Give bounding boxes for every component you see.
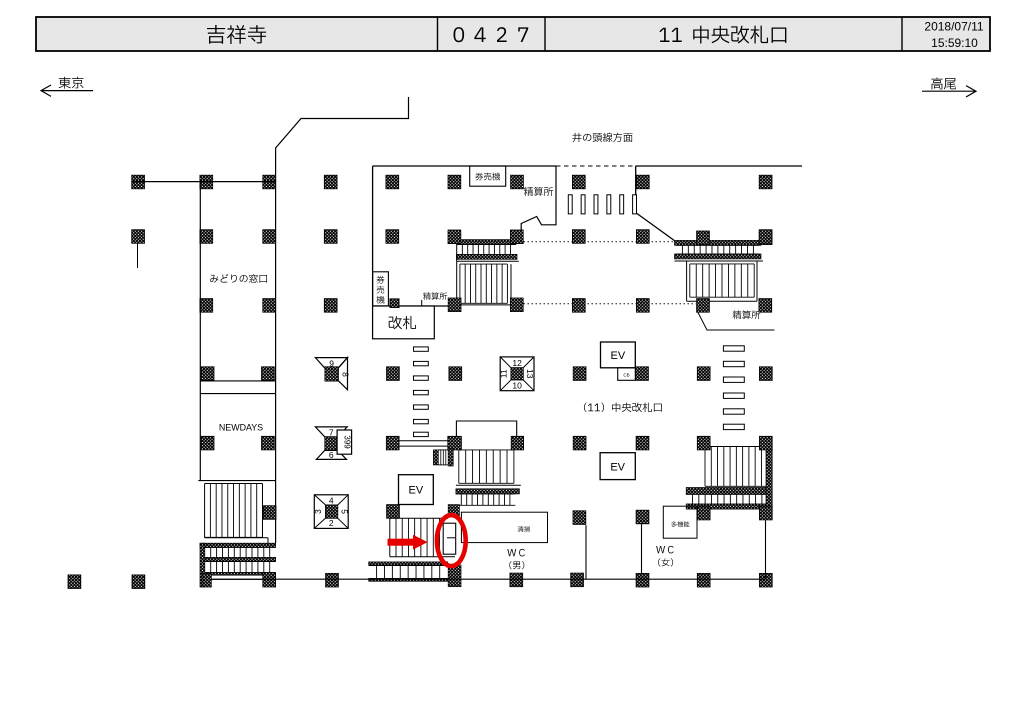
svg-text:EV: EV [409, 485, 424, 497]
svg-text:10: 10 [512, 381, 522, 391]
svg-text:11: 11 [499, 369, 509, 378]
svg-text:399: 399 [343, 435, 352, 449]
svg-text:CB: CB [623, 372, 629, 377]
svg-text:12: 12 [512, 358, 522, 368]
svg-text:5: 5 [340, 509, 350, 514]
svg-text:2018/07/11: 2018/07/11 [924, 20, 983, 34]
svg-text:6: 6 [329, 450, 334, 460]
svg-text:8: 8 [341, 372, 351, 377]
svg-text:EV: EV [611, 350, 626, 362]
svg-text:13: 13 [525, 369, 535, 379]
svg-text:4: 4 [329, 495, 334, 505]
svg-text:2: 2 [329, 518, 334, 528]
svg-text:7: 7 [329, 427, 334, 437]
svg-text:3: 3 [313, 509, 323, 514]
svg-text:NEWDAYS: NEWDAYS [219, 422, 263, 432]
svg-text:15:59:10: 15:59:10 [931, 36, 978, 50]
svg-text:EV: EV [610, 461, 625, 473]
